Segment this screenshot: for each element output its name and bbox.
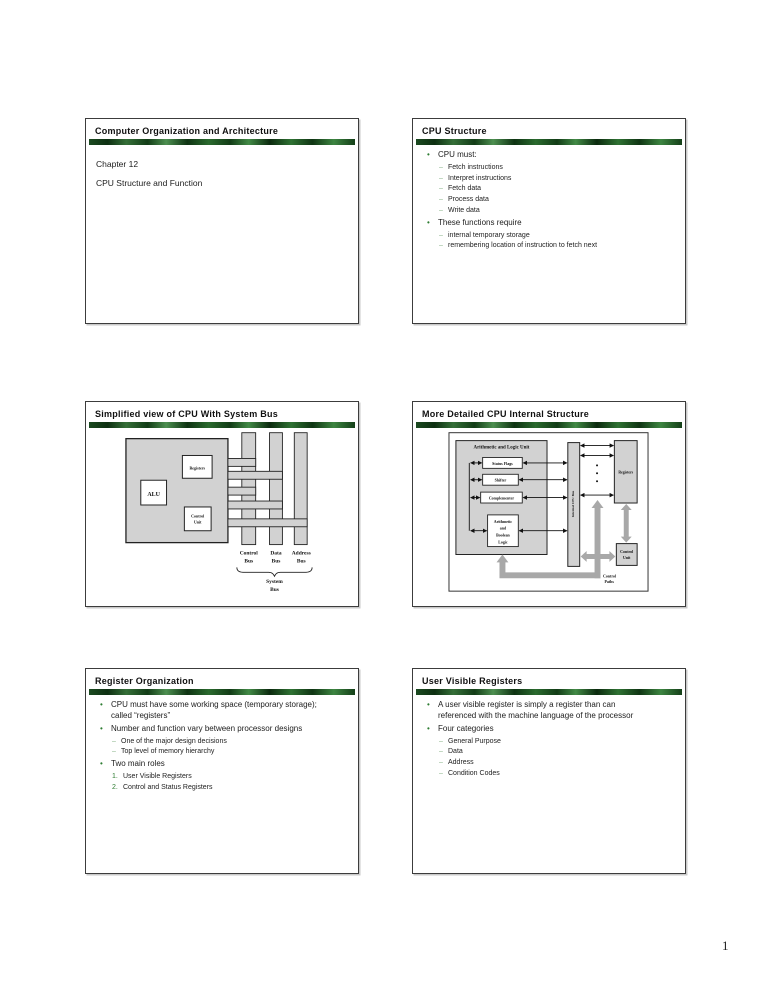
complementer-label: Complementer	[489, 496, 514, 501]
number-marker: 2.	[108, 783, 123, 793]
bus-connector	[228, 519, 307, 527]
chapter-line: Chapter 12	[96, 155, 358, 174]
bullet-text: Condition Codes	[448, 769, 500, 779]
bullet-item: •Number and function vary between proces…	[94, 724, 350, 735]
bullet-text: General Purpose	[448, 737, 501, 747]
green-divider-bar	[89, 139, 355, 145]
bullet-item: •A user visible register is simply a reg…	[421, 700, 677, 721]
bus-connector	[228, 458, 256, 466]
arith-logic-line2: and	[500, 526, 507, 531]
control-paths-line1: Control	[603, 573, 617, 578]
address-bus-word: Bus	[297, 558, 306, 564]
data-bus-word: Bus	[272, 558, 281, 564]
bullet-text: Address	[448, 758, 474, 768]
slide-title-card: Computer Organization and Architecture C…	[85, 118, 359, 324]
system-bus-brace	[237, 567, 312, 576]
slide-register-organization: Register Organization •CPU must have som…	[85, 668, 359, 874]
title-card-lines: Chapter 12 CPU Structure and Function	[96, 155, 358, 192]
bullet-item: •Two main roles	[94, 759, 350, 770]
dash-marker: –	[435, 195, 448, 205]
bullet-list: •CPU must have some working space (tempo…	[86, 700, 358, 792]
dash-marker: –	[435, 241, 448, 251]
bus-connector	[228, 501, 282, 509]
bullet-marker: •	[421, 150, 438, 161]
bus-connector	[228, 471, 282, 479]
registers-label: Registers	[618, 470, 633, 474]
control-unit-line2: Unit	[623, 555, 631, 560]
control-path-up-arrow	[592, 500, 604, 578]
bullet-item: –remembering location of instruction to …	[435, 241, 677, 251]
bullet-item: –Fetch instructions	[435, 163, 677, 173]
bullet-item: –Fetch data	[435, 184, 677, 194]
bullet-marker: •	[421, 724, 438, 735]
control-unit-line1: Control	[620, 549, 634, 554]
bullet-item: •Four categories	[421, 724, 677, 735]
bullet-item: –One of the major design decisions	[108, 737, 350, 747]
control-unit-label-line1: Control	[191, 513, 205, 518]
alu-label: ALU	[147, 492, 160, 498]
data-bus-bar	[270, 433, 283, 545]
internal-cpu-bus-label: Internal CPU Bus	[571, 490, 575, 517]
dash-marker: –	[435, 174, 448, 184]
subtitle-line: CPU Structure and Function	[96, 174, 358, 193]
bullet-text: CPU must have some working space (tempor…	[111, 700, 327, 721]
dash-marker: –	[108, 747, 121, 757]
control-bus-word: Bus	[244, 558, 253, 564]
dash-marker: –	[435, 758, 448, 768]
numbered-item: 2.Control and Status Registers	[108, 783, 350, 793]
bullet-marker: •	[421, 700, 438, 711]
ellipsis-dot	[596, 472, 598, 474]
system-bus-label-line2: Bus	[270, 587, 279, 593]
arith-logic-line1: Arithmetic	[494, 519, 513, 524]
bullet-marker: •	[94, 724, 111, 735]
bullet-list: •A user visible register is simply a reg…	[413, 700, 685, 778]
bullet-item: –Top level of memory hierarchy	[108, 747, 350, 757]
shifter-label: Shifter	[495, 478, 507, 483]
bullet-list: •CPU must: –Fetch instructions –Interpre…	[413, 150, 685, 251]
bullet-text: Write data	[448, 206, 480, 216]
bullet-item: –Interpret instructions	[435, 174, 677, 184]
green-divider-bar	[416, 139, 682, 145]
slide-detailed-cpu-structure: More Detailed CPU Internal Structure Ari…	[412, 401, 686, 607]
ellipsis-dot	[596, 480, 598, 482]
bullet-marker: •	[421, 218, 438, 229]
arith-logic-line3: Boolean	[496, 533, 510, 538]
numbered-item: 1.User Visible Registers	[108, 772, 350, 782]
dash-marker: –	[435, 769, 448, 779]
bullet-text: These functions require	[438, 218, 522, 229]
bullet-marker: •	[94, 700, 111, 711]
control-paths-line2: Paths	[604, 579, 614, 584]
registers-controlunit-arrow	[621, 504, 632, 543]
slide-title: User Visible Registers	[422, 676, 676, 686]
control-bus-label: Control	[240, 551, 259, 557]
bullet-text: Process data	[448, 195, 489, 205]
dash-marker: –	[435, 737, 448, 747]
dash-marker: –	[435, 747, 448, 757]
arith-logic-line4: Logic	[498, 540, 508, 545]
dash-marker: –	[435, 231, 448, 241]
page-number: 1	[722, 938, 729, 954]
bullet-text: Data	[448, 747, 463, 757]
bullet-item: •CPU must:	[421, 150, 677, 161]
bullet-text: Fetch instructions	[448, 163, 503, 173]
bullet-text: remembering location of instruction to f…	[448, 241, 597, 251]
cpu-system-bus-diagram: ALU Registers Control Unit Control Bus D…	[86, 402, 358, 606]
bullet-text: One of the major design decisions	[121, 737, 227, 747]
green-divider-bar	[416, 689, 682, 695]
handout-page: { "page_number": "1", "slides": [ { "tit…	[0, 0, 768, 994]
bullet-marker: •	[94, 759, 111, 770]
control-unit-label-line2: Unit	[194, 519, 202, 524]
bus-connector	[228, 487, 256, 495]
bullet-text: internal temporary storage	[448, 231, 530, 241]
dash-marker: –	[108, 737, 121, 747]
bullet-text: Control and Status Registers	[123, 783, 213, 793]
number-marker: 1.	[108, 772, 123, 782]
alu-block-title: Arithmetic and Logic Unit	[474, 446, 530, 451]
dash-marker: –	[435, 163, 448, 173]
bullet-text: User Visible Registers	[123, 772, 192, 782]
bullet-item: –General Purpose	[435, 737, 677, 747]
bullet-item: •These functions require	[421, 218, 677, 229]
bullet-item: –internal temporary storage	[435, 231, 677, 241]
bullet-item: –Condition Codes	[435, 769, 677, 779]
data-bus-label: Data	[270, 551, 281, 557]
registers-label: Registers	[189, 465, 205, 470]
slide-user-visible-registers: User Visible Registers •A user visible r…	[412, 668, 686, 874]
bullet-text: Number and function vary between process…	[111, 724, 302, 735]
slide-simplified-cpu-bus: Simplified view of CPU With System Bus A…	[85, 401, 359, 607]
cpu-internal-structure-diagram: Arithmetic and Logic Unit Status Flags S…	[413, 402, 685, 606]
bullet-text: Top level of memory hierarchy	[121, 747, 214, 757]
status-flags-label: Status Flags	[492, 461, 513, 466]
bullet-text: CPU must:	[438, 150, 477, 161]
bullet-item: –Process data	[435, 195, 677, 205]
bullet-text: Fetch data	[448, 184, 481, 194]
dash-marker: –	[435, 206, 448, 216]
bullet-text: Two main roles	[111, 759, 165, 770]
address-bus-bar	[294, 433, 307, 545]
slide-cpu-structure: CPU Structure •CPU must: –Fetch instruct…	[412, 118, 686, 324]
bullet-text: Interpret instructions	[448, 174, 511, 184]
slide-title: Computer Organization and Architecture	[95, 126, 349, 136]
bullet-text: A user visible register is simply a regi…	[438, 700, 654, 721]
bullet-item: •CPU must have some working space (tempo…	[94, 700, 350, 721]
address-bus-label: Address	[292, 551, 311, 557]
slide-title: CPU Structure	[422, 126, 676, 136]
bullet-item: –Write data	[435, 206, 677, 216]
system-bus-label-line1: System	[266, 579, 283, 585]
dash-marker: –	[435, 184, 448, 194]
green-divider-bar	[89, 689, 355, 695]
bullet-item: –Address	[435, 758, 677, 768]
slide-title: Register Organization	[95, 676, 349, 686]
bullet-item: –Data	[435, 747, 677, 757]
bullet-text: Four categories	[438, 724, 494, 735]
ellipsis-dot	[596, 464, 598, 466]
